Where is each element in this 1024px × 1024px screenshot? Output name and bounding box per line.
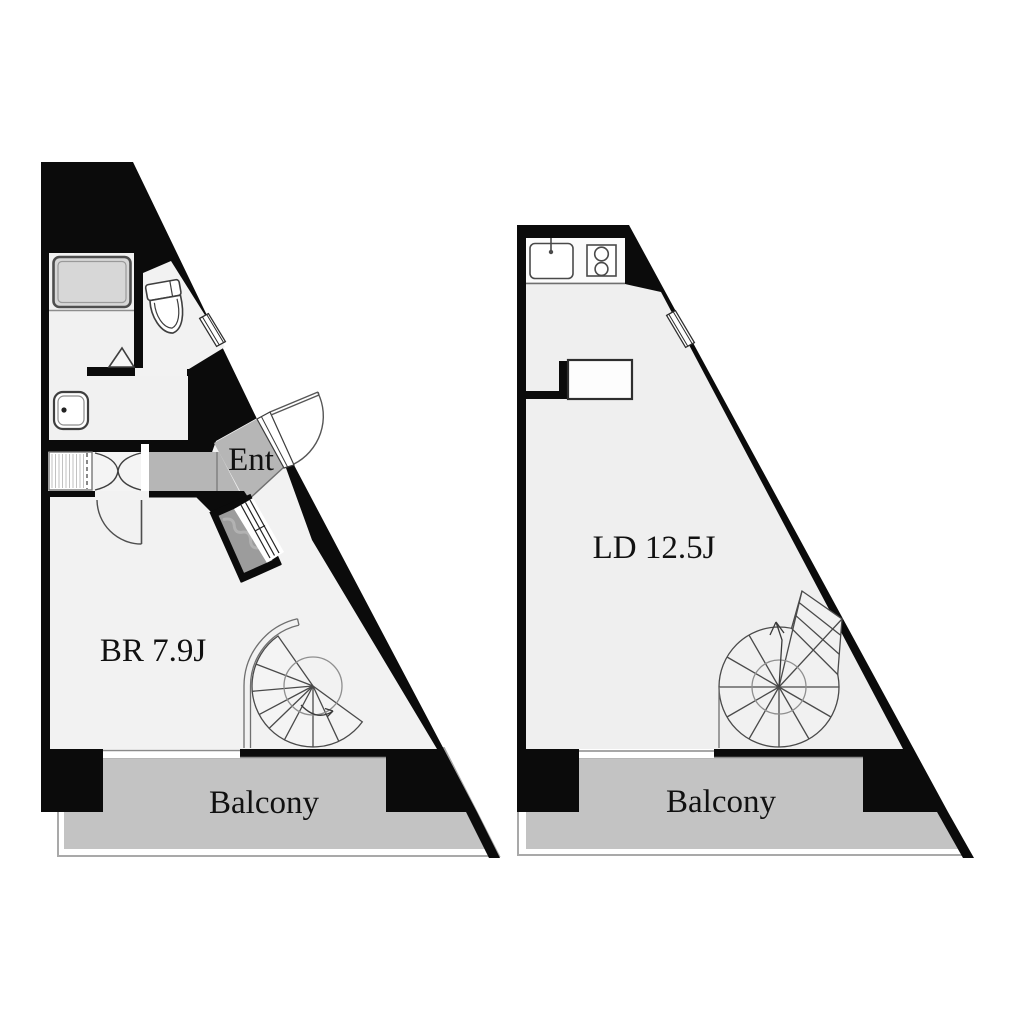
- svg-text:BR 7.9J: BR 7.9J: [100, 633, 207, 669]
- svg-text:Balcony: Balcony: [666, 784, 776, 820]
- svg-text:Balcony: Balcony: [209, 785, 319, 821]
- svg-text:Ent: Ent: [228, 442, 274, 478]
- svg-text:LD 12.5J: LD 12.5J: [593, 530, 716, 566]
